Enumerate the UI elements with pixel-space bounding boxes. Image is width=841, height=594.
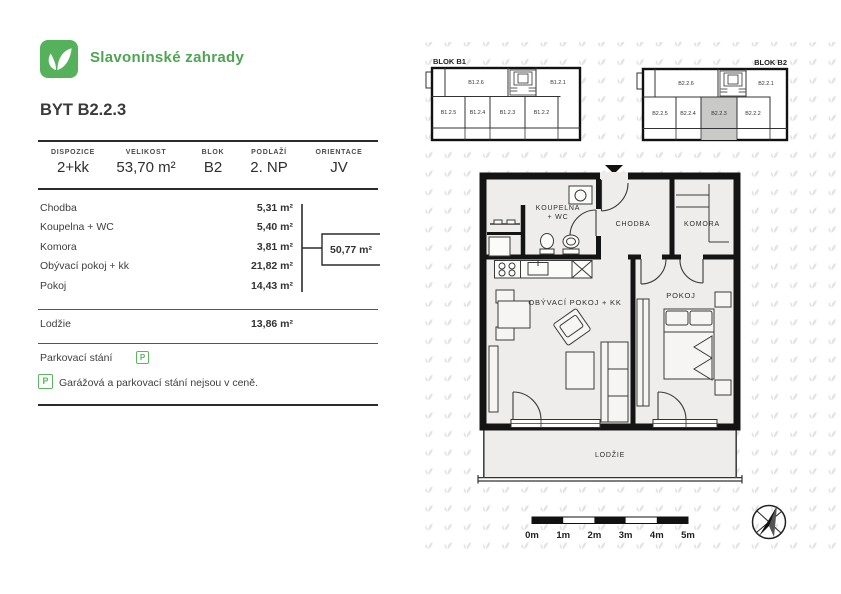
room-row-lodzie: Lodžie 13,86 m² — [40, 318, 293, 332]
unit-label: B2.2.2 — [745, 111, 761, 117]
summary-label: BLOK — [202, 149, 225, 156]
subtotal-value: 50,77 m² — [330, 244, 373, 256]
room-area: 3,81 m² — [257, 241, 293, 253]
scale-tick-label: 1m — [556, 530, 570, 541]
divider — [38, 188, 378, 190]
room-label: Koupelna + WC — [40, 221, 114, 233]
leaf-icon — [40, 40, 78, 78]
label-komora: KOMORA — [684, 221, 720, 228]
label-lodzie: LODŽIE — [595, 450, 625, 459]
room-label: Pokoj — [40, 280, 66, 292]
scale-tick-label: 2m — [588, 530, 602, 541]
room-area: 5,31 m² — [257, 202, 293, 214]
highlighted-unit-cell — [701, 97, 737, 140]
summary-value: 2. NP — [250, 159, 288, 176]
label-koupelna: KOUPELNA — [536, 205, 581, 212]
main-floorplan: KOUPELNA + WC CHODBA KOMORA OBÝVACÍ POKO… — [478, 165, 742, 484]
unit-label: B1.2.2 — [534, 110, 550, 116]
summary-label: DISPOZICE — [51, 149, 95, 156]
block-b2-plan: BLOK B2 B2.2.6 B2 — [637, 58, 787, 140]
room-label: Komora — [40, 241, 77, 253]
summary-col-podlazi: PODLAŽÍ 2. NP — [250, 149, 288, 176]
brand-logo — [40, 40, 78, 78]
label-chodba: CHODBA — [616, 221, 651, 228]
entrance-opening — [600, 172, 628, 180]
room-area: 21,82 m² — [251, 260, 293, 272]
label-obyvaci: OBÝVACÍ POKOJ + KK — [528, 298, 621, 307]
divider — [38, 404, 378, 406]
page-title: BYT B2.2.3 — [40, 101, 126, 120]
room-label: Obývací pokoj + kk — [40, 260, 129, 272]
block-b2-label: BLOK B2 — [754, 58, 787, 67]
brand-name: Slavonínské zahrady — [90, 49, 244, 66]
room-area: 5,40 m² — [257, 221, 293, 233]
label-koupelna-wc: + WC — [548, 214, 569, 221]
room-row-obyvaci: Obývací pokoj + kk 21,82 m² — [40, 260, 293, 274]
summary-label: PODLAŽÍ — [250, 149, 288, 156]
label-pokoj: POKOJ — [666, 291, 695, 300]
parking-badge-icon: P — [136, 351, 149, 364]
room-label: Chodba — [40, 202, 77, 214]
summary-col-velikost: VELIKOST 53,70 m² — [116, 149, 175, 176]
divider — [38, 343, 378, 344]
summary-value: B2 — [202, 159, 225, 176]
unit-label: B1.2.4 — [470, 110, 486, 116]
room-row-komora: Komora 3,81 m² — [40, 241, 293, 255]
floorplan-canvas: BLOK B1 B1.2.6 B1.2.1 — [410, 38, 841, 558]
room-label: Lodžie — [40, 318, 71, 330]
brochure-page: Slavonínské zahrady BYT B2.2.3 DISPOZICE… — [0, 0, 841, 594]
unit-label: B2.2.1 — [758, 81, 774, 87]
subtotal-bracket: 50,77 m² — [296, 198, 384, 298]
summary-label: VELIKOST — [116, 149, 175, 156]
unit-label: B2.2.6 — [678, 81, 694, 87]
parking-badge-icon: P — [38, 374, 53, 389]
unit-label-highlighted: B2.2.3 — [711, 111, 727, 117]
summary-col-dispozice: DISPOZICE 2+kk — [51, 149, 95, 176]
room-row-koupelna: Koupelna + WC 5,40 m² — [40, 221, 293, 235]
scale-tick-label: 0m — [525, 530, 539, 541]
divider — [38, 309, 378, 310]
parking-note: Garážová a parkovací stání nejsou v ceně… — [59, 377, 258, 389]
room-area: 14,43 m² — [251, 280, 293, 292]
room-area: 13,86 m² — [251, 318, 293, 330]
block-b1-plan: BLOK B1 B1.2.6 B1.2.1 — [426, 57, 580, 140]
room-row-chodba: Chodba 5,31 m² — [40, 202, 293, 216]
room-row-pokoj: Pokoj 14,43 m² — [40, 280, 293, 294]
block-b1-label: BLOK B1 — [433, 57, 466, 66]
scale-tick-label: 5m — [681, 530, 695, 541]
summary-value: JV — [315, 159, 362, 176]
parking-label: Parkovací stání — [40, 352, 112, 364]
summary-value: 53,70 m² — [116, 159, 175, 176]
unit-label: B1.2.1 — [550, 80, 566, 86]
kitchen-counter — [495, 261, 593, 279]
summary-label: ORIENTACE — [315, 149, 362, 156]
summary-value: 2+kk — [51, 159, 95, 176]
unit-label: B2.2.4 — [680, 111, 696, 117]
divider — [38, 140, 378, 142]
unit-label: B1.2.5 — [441, 110, 457, 116]
summary-col-blok: BLOK B2 — [202, 149, 225, 176]
summary-col-orientace: ORIENTACE JV — [315, 149, 362, 176]
unit-label: B1.2.6 — [468, 80, 484, 86]
scale-tick-label: 4m — [650, 530, 664, 541]
scale-tick-label: 3m — [619, 530, 633, 541]
unit-label: B2.2.5 — [652, 111, 668, 117]
unit-label: B1.2.3 — [500, 110, 516, 116]
